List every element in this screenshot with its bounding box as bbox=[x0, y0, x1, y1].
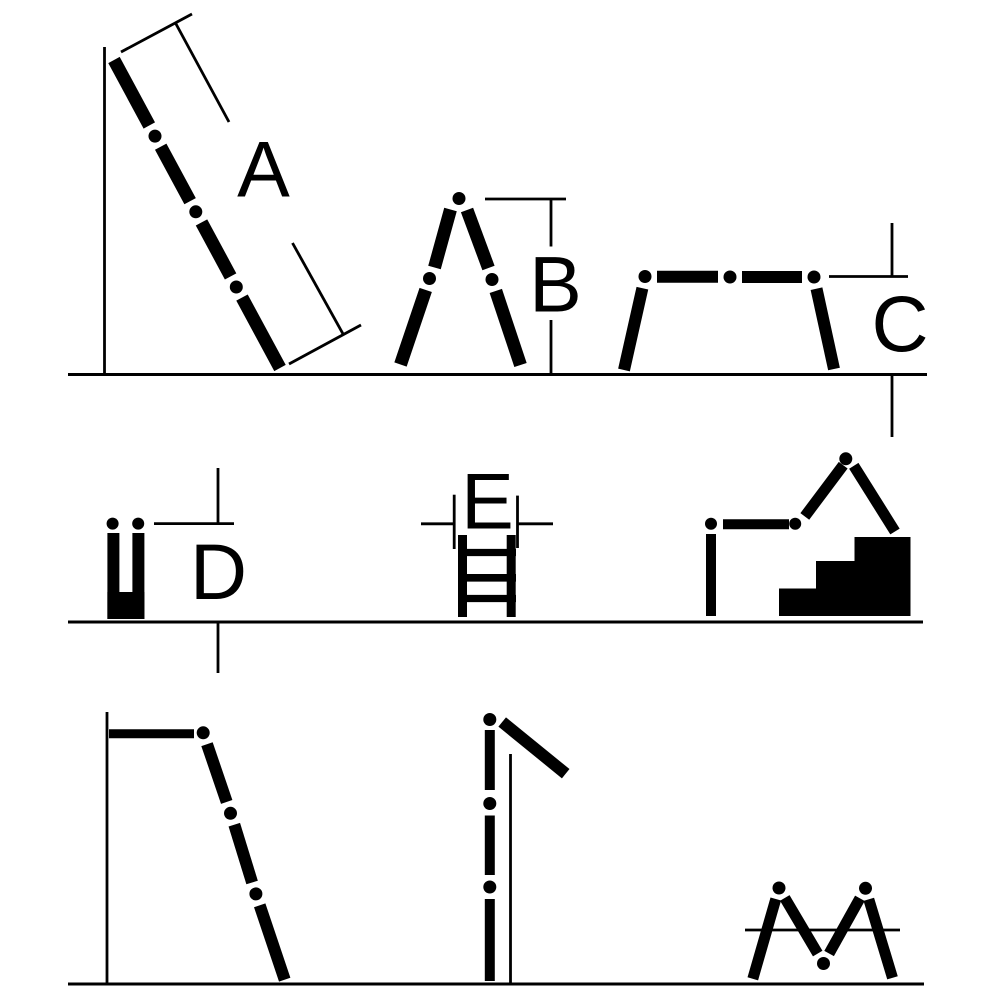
svg-text:A: A bbox=[237, 124, 290, 213]
svg-text:E: E bbox=[461, 456, 514, 545]
svg-text:B: B bbox=[529, 240, 582, 329]
svg-text:C: C bbox=[871, 279, 928, 368]
svg-text:D: D bbox=[190, 527, 247, 616]
